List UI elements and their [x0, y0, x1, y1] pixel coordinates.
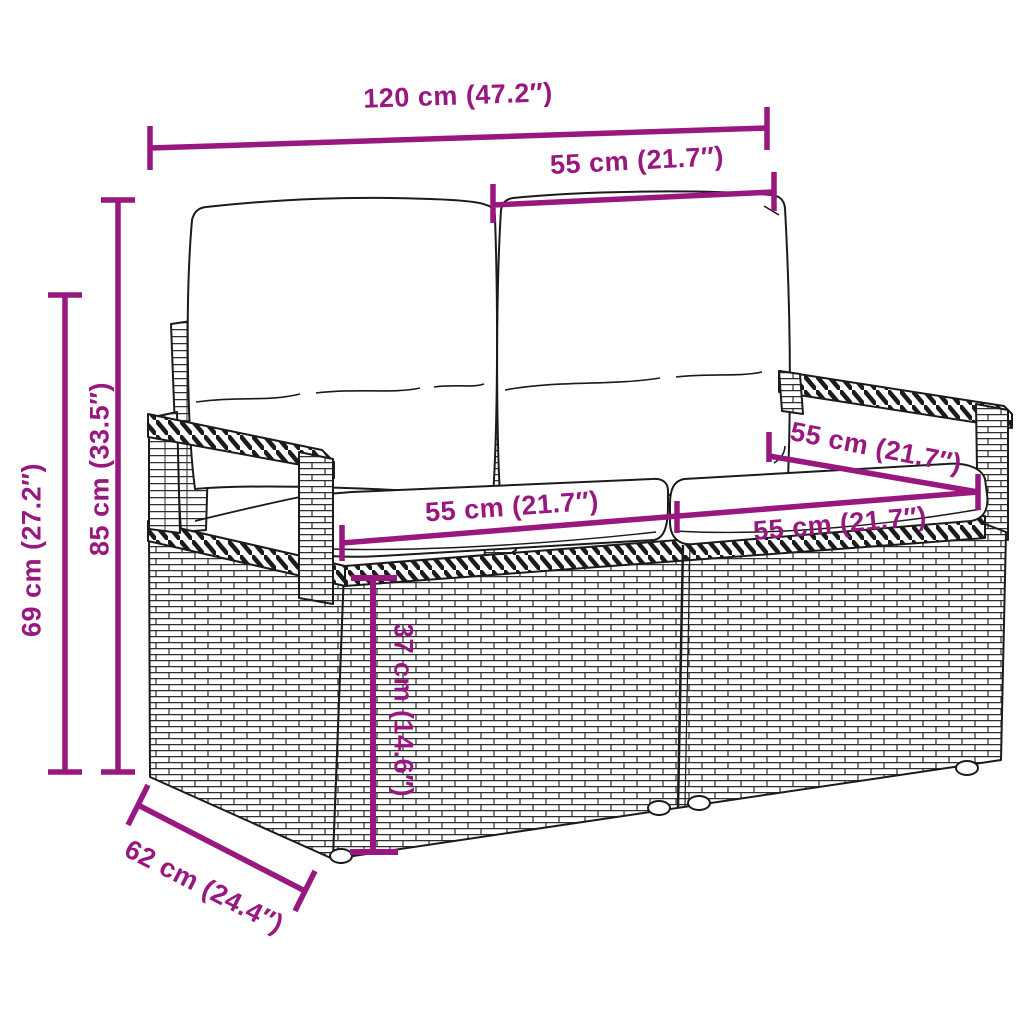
base: [148, 516, 1006, 863]
right-arm-rail-cap: [779, 371, 803, 414]
dim-line-armrest-height: [48, 295, 82, 772]
dimension-label-overall-height: 85 cm (33.5″): [87, 382, 114, 556]
foot-4: [956, 761, 978, 775]
dimension-label-seat-height: 37 cm (14.6″): [390, 623, 417, 797]
dimension-label-armrest-height: 69 cm (27.2″): [19, 463, 46, 637]
foot-3: [688, 796, 710, 810]
dimension-label-overall-width: 120 cm (47.2″): [363, 79, 553, 113]
left-arm-post: [299, 452, 333, 604]
seat-cushion-left-corner-line: [195, 497, 300, 521]
back-cushion-right: [497, 191, 790, 502]
foot-1: [330, 849, 352, 863]
product-dimension-diagram: 120 cm (47.2″) 55 cm (21.7″) 85 cm (33.5…: [0, 0, 1024, 1024]
foot-2: [648, 801, 670, 815]
